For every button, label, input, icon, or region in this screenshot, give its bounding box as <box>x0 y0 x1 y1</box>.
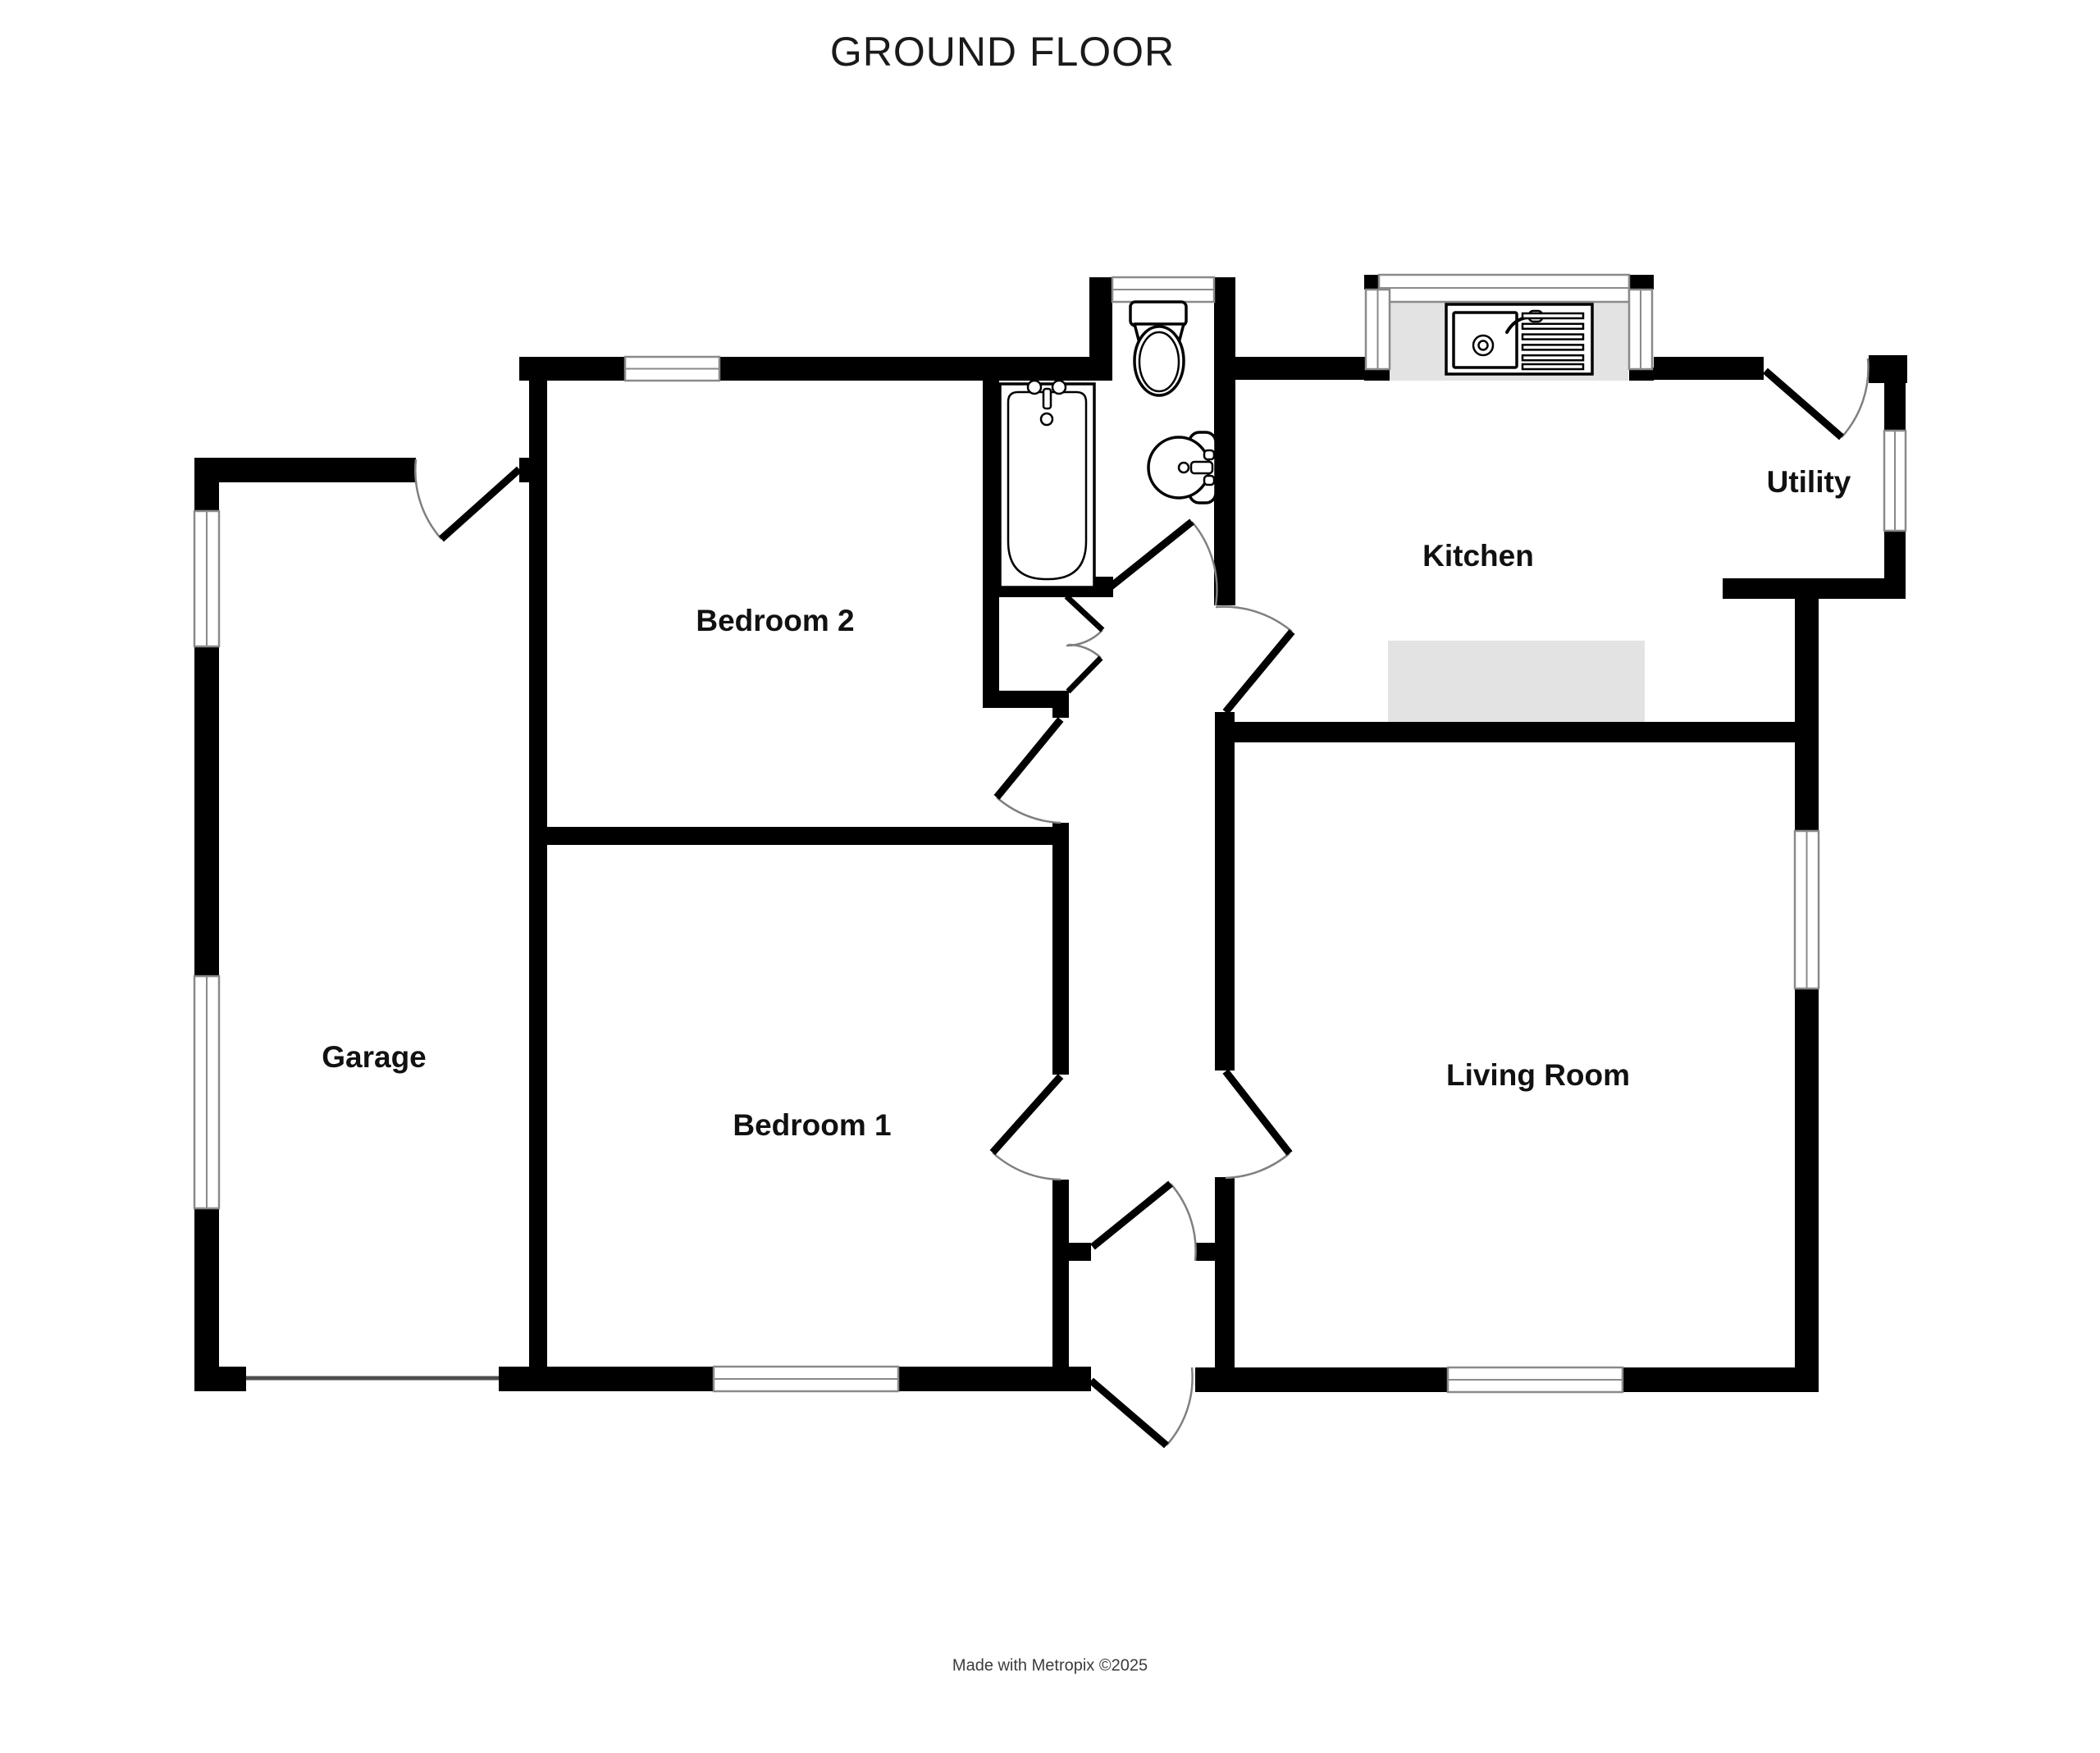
door-front-entrance <box>1091 1367 1193 1445</box>
garage-left-wall-mid <box>194 646 219 976</box>
door-garage <box>415 459 519 539</box>
floorplan-svg <box>0 0 2100 1753</box>
bath-icon <box>1000 381 1094 587</box>
bedroom1-bottom-wall-left <box>529 1367 714 1391</box>
room-label-bedroom2: Bedroom 2 <box>696 604 854 638</box>
window-bay-top <box>1379 275 1629 302</box>
basin-icon <box>1148 432 1216 503</box>
room-label-kitchen: Kitchen <box>1422 539 1534 573</box>
window-bedroom2-top <box>625 357 719 381</box>
kitchen-top-wall-left <box>1235 357 1365 380</box>
hall-right-wall-lower <box>1215 1177 1235 1367</box>
bedroom2-right-wall <box>983 381 999 708</box>
room-label-utility: Utility <box>1767 465 1851 500</box>
living-right-wall-lower <box>1795 988 1819 1392</box>
garage-bottom-left-block <box>194 1367 246 1391</box>
window-garage-upper <box>194 511 219 646</box>
toilet-icon <box>1130 302 1186 395</box>
kitchen-right-step-wall <box>1795 578 1819 831</box>
window-bathroom-top <box>1112 277 1214 302</box>
room-label-living-room: Living Room <box>1446 1058 1630 1093</box>
door-bathroom <box>1110 522 1217 605</box>
window-bay-right <box>1629 290 1652 369</box>
bedroom2-top-wall-left <box>519 357 625 381</box>
room-label-garage: Garage <box>322 1040 427 1075</box>
window-living-bottom <box>1448 1367 1623 1392</box>
bedroom1-top-wall <box>529 827 1069 845</box>
door-vestibule <box>1093 1184 1196 1261</box>
bedroom2-top-wall-right <box>719 357 1110 381</box>
vestibule-bottom-block <box>1050 1367 1091 1391</box>
credit-line: Made with Metropix ©2025 <box>952 1657 1148 1676</box>
kitchen-worktop <box>1388 641 1645 723</box>
bedroom1-right-wall-upper <box>1052 823 1069 1075</box>
door-living-room <box>1226 1071 1290 1178</box>
bay-post-top-left <box>1364 275 1379 290</box>
bedroom1-right-wall-lower <box>1052 1180 1069 1367</box>
room-label-bedroom1: Bedroom 1 <box>733 1108 891 1143</box>
bathroom-proj-left-wall <box>1089 277 1112 381</box>
garage-bedroom-shared-wall <box>529 357 547 1367</box>
door-utility <box>1765 358 1869 437</box>
window-bay-left <box>1366 290 1390 369</box>
vestibule-stub-left <box>1069 1243 1091 1261</box>
garage-top-wall <box>194 458 416 482</box>
living-bottom-wall-left <box>1195 1367 1448 1392</box>
window-living-right <box>1795 831 1819 988</box>
hall-right-wall-mid <box>1215 742 1235 1071</box>
door-nook-bifold <box>1066 596 1102 692</box>
living-bottom-wall-right <box>1623 1367 1819 1392</box>
bath-foot-wall <box>999 587 1097 597</box>
window-utility-right <box>1884 431 1906 531</box>
garage-left-wall-lower <box>194 1208 219 1390</box>
kitchen-sink-icon <box>1446 304 1592 374</box>
page-title: GROUND FLOOR <box>830 28 1175 75</box>
door-kitchen <box>1216 607 1292 712</box>
door-bedroom2 <box>997 719 1061 823</box>
utility-right-wall-upper <box>1884 355 1906 431</box>
bay-post-top-right <box>1629 275 1654 290</box>
vestibule-stub-right <box>1196 1243 1215 1261</box>
nook-post <box>1052 691 1069 718</box>
bathroom-right-wall <box>1214 277 1235 605</box>
garage-left-wall-upper <box>194 458 219 511</box>
window-bedroom1-bottom <box>714 1367 898 1391</box>
window-garage-lower <box>194 976 219 1208</box>
floorplan-page: GROUND FLOOR Garage Bedroom 2 Bedroom 1 … <box>0 0 2100 1753</box>
door-bedroom1 <box>993 1076 1061 1180</box>
kitchen-living-wall <box>1215 722 1795 742</box>
kitchen-top-wall-right <box>1654 357 1764 380</box>
